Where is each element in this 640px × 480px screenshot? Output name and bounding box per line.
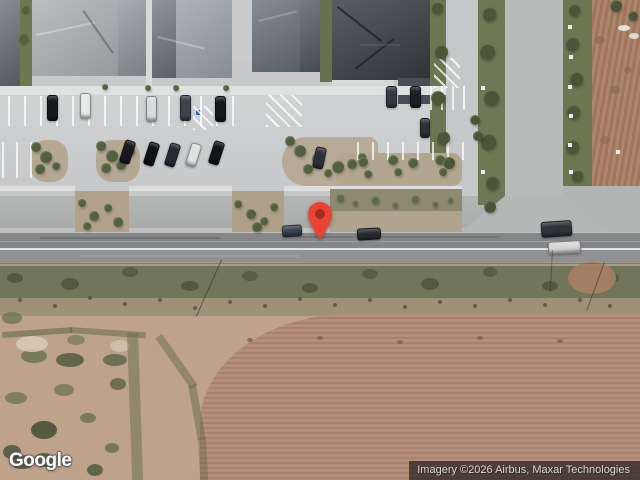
ground-blob — [608, 304, 612, 308]
ground-blob — [508, 298, 512, 302]
tree — [473, 131, 483, 141]
ground-line — [0, 263, 640, 264]
ground-blob — [421, 278, 439, 290]
car — [420, 118, 430, 138]
bush — [18, 33, 28, 43]
parking-stripe — [432, 142, 434, 160]
bush — [252, 222, 262, 232]
ground-blob — [54, 384, 74, 396]
parking-stripe — [463, 86, 465, 110]
ground-blob — [618, 25, 630, 31]
parking-stripe — [168, 96, 170, 126]
satellite-map[interactable]: Google Imagery ©2026 Airbus, Maxar Techn… — [0, 0, 640, 480]
ground-blob — [193, 306, 197, 310]
ground-blob — [110, 378, 126, 390]
tree — [485, 176, 499, 190]
plowed-field — [200, 314, 640, 480]
bush — [223, 85, 229, 91]
utility-box — [569, 55, 573, 59]
bush — [388, 155, 398, 165]
ground-blob — [5, 392, 27, 404]
ground-line — [40, 237, 220, 239]
ground-blob — [16, 336, 48, 352]
ground-blob — [317, 336, 323, 340]
bush — [106, 150, 118, 162]
pin-dot — [315, 209, 325, 219]
bush — [35, 164, 45, 174]
utility-box — [616, 150, 620, 154]
ground-blob — [600, 136, 610, 144]
parking-stripe — [104, 96, 106, 126]
parking-stripe — [372, 142, 374, 160]
parking-stripe — [417, 142, 419, 160]
parking-stripe — [462, 142, 464, 160]
tree — [482, 7, 496, 21]
car — [80, 93, 91, 119]
ground-blob — [88, 296, 92, 300]
ground-blob — [483, 267, 497, 277]
ground-blob — [302, 283, 318, 293]
tree — [431, 91, 445, 105]
bush — [285, 136, 295, 146]
ground-blob — [362, 269, 378, 279]
ground-blob — [158, 298, 162, 302]
bush — [347, 159, 357, 169]
ground-blob — [610, 86, 620, 94]
bush — [234, 200, 242, 208]
tree — [628, 11, 638, 21]
parking-stripe — [72, 96, 74, 126]
parking-stripe — [24, 96, 26, 126]
ground-blob — [473, 304, 477, 308]
bush — [83, 222, 91, 230]
car — [146, 96, 157, 122]
ground-blob — [477, 336, 483, 340]
car — [357, 227, 382, 240]
bush — [332, 161, 344, 173]
ground-blob — [438, 300, 442, 304]
utility-box — [568, 25, 572, 29]
ground-blob — [595, 36, 605, 44]
tree — [479, 44, 495, 60]
bush — [324, 169, 332, 177]
ground-blob — [247, 338, 253, 342]
roof-ridge — [360, 44, 400, 46]
bush — [358, 157, 368, 167]
parking-stripe — [8, 96, 10, 126]
ground-blob — [403, 305, 407, 309]
utility-box — [568, 85, 572, 89]
tree — [610, 0, 622, 12]
bush — [78, 199, 86, 207]
bush — [40, 151, 52, 163]
ground-blob — [228, 300, 232, 304]
car — [180, 95, 191, 121]
bush — [102, 84, 108, 90]
bush — [336, 194, 344, 202]
bush — [439, 168, 447, 176]
ground-blob — [53, 304, 57, 308]
bush — [113, 217, 123, 227]
bush — [104, 204, 112, 212]
ground-blob — [368, 298, 372, 302]
building-roof — [0, 0, 20, 86]
bush — [145, 85, 151, 91]
utility-box — [569, 114, 573, 118]
bush — [364, 170, 372, 178]
tree — [484, 201, 496, 213]
tree — [569, 72, 583, 86]
parking-stripe — [232, 96, 234, 126]
car — [540, 220, 572, 238]
tree — [568, 4, 580, 16]
tree — [436, 131, 450, 145]
road-edge-line — [0, 248, 640, 250]
bush — [31, 142, 41, 152]
bush — [270, 203, 278, 211]
ground-blob — [80, 413, 96, 423]
ground-blob — [263, 304, 267, 308]
ground-blob — [578, 298, 582, 302]
ground-blob — [2, 312, 22, 324]
bush — [432, 201, 438, 207]
ground-blob — [181, 281, 199, 291]
bush — [294, 145, 306, 157]
bush — [101, 163, 111, 173]
ground-blob — [67, 335, 85, 345]
bush — [371, 196, 379, 204]
pavement-hatch — [266, 95, 302, 127]
utility-box — [481, 86, 485, 90]
curb — [129, 186, 232, 191]
bush — [52, 162, 60, 170]
road-lane-line — [0, 241, 640, 242]
bush — [352, 200, 358, 206]
tree — [565, 37, 579, 51]
parking-stripe — [136, 96, 138, 126]
side-street — [505, 0, 563, 230]
ground-blob — [122, 267, 138, 277]
bush — [96, 141, 106, 151]
bush — [392, 202, 398, 208]
bush — [21, 5, 29, 13]
weed-strip — [330, 211, 462, 232]
ground-blob — [298, 297, 302, 301]
dirt-lot — [592, 0, 640, 188]
pavement — [232, 0, 252, 62]
ground-blob — [105, 443, 119, 453]
grass-strip — [20, 0, 32, 86]
parking-stripe — [402, 142, 404, 160]
ground-blob — [543, 303, 547, 307]
ground-blob — [18, 298, 22, 302]
car — [386, 86, 397, 108]
bush — [394, 168, 402, 176]
tree — [434, 45, 448, 59]
bush — [173, 85, 179, 91]
ground-blob — [624, 67, 632, 73]
map-pin-icon[interactable] — [306, 201, 334, 241]
ground-blob — [61, 278, 79, 290]
ground-blob — [397, 340, 403, 344]
bush — [411, 195, 419, 203]
curb — [0, 186, 75, 191]
utility-box — [481, 170, 485, 174]
bush — [447, 197, 453, 203]
parking-stripe — [16, 142, 18, 178]
ground-blob — [123, 302, 127, 306]
google-logo[interactable]: Google — [9, 450, 71, 472]
ground-blob — [557, 339, 563, 343]
ground-blob — [242, 271, 258, 281]
utility-box — [568, 143, 572, 147]
car — [215, 96, 226, 122]
utility-box — [569, 170, 573, 174]
parking-stripe — [2, 142, 4, 178]
ground-blob — [87, 464, 103, 476]
pavement-hatch — [193, 106, 213, 130]
building-roof — [300, 0, 320, 72]
pin-body — [308, 202, 332, 240]
tree — [443, 157, 455, 169]
ground-blob — [103, 354, 127, 366]
ground-blob — [31, 421, 57, 439]
parking-stripe — [120, 96, 122, 126]
tree — [431, 2, 443, 14]
ground-blob — [568, 262, 616, 294]
ground-line — [80, 255, 300, 257]
grass-strip — [320, 0, 332, 82]
parking-stripe — [40, 96, 42, 126]
pavement-hatch — [434, 58, 460, 88]
ground-blob — [333, 303, 337, 307]
tree — [483, 90, 499, 106]
bush — [89, 211, 99, 221]
bush — [408, 158, 418, 168]
ground-blob — [56, 353, 84, 367]
ground-blob — [7, 273, 23, 283]
car — [47, 95, 58, 121]
car — [410, 86, 421, 108]
imagery-attribution: Imagery ©2026 Airbus, Maxar Technologies — [409, 461, 640, 480]
parking-stripe — [452, 86, 454, 110]
ground-blob — [629, 33, 639, 39]
bush — [246, 209, 256, 219]
building-roof — [118, 0, 146, 76]
tree — [470, 115, 480, 125]
